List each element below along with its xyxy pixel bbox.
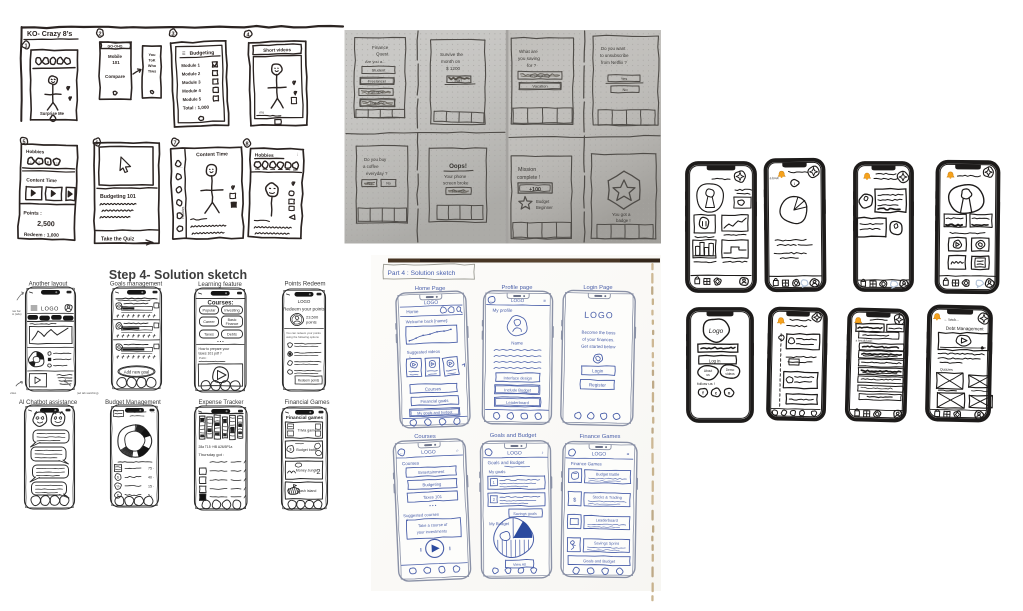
svg-text:⋮: ⋮ <box>296 152 300 156</box>
svg-text:to unsubscribe: to unsubscribe <box>600 53 629 58</box>
svg-text:Yes: Yes <box>367 182 373 186</box>
svg-text:Add new goal: Add new goal <box>124 369 149 374</box>
svg-text:⋯: ⋯ <box>151 411 155 415</box>
svg-text:LOGO: LOGO <box>507 450 522 456</box>
svg-text:←: ← <box>490 299 494 303</box>
svg-text:Module 1: Module 1 <box>181 62 200 68</box>
svg-text:7: 7 <box>173 140 176 146</box>
svg-text:• • •: • • • <box>429 503 437 508</box>
svg-text:Part-time: Part-time <box>368 91 383 95</box>
svg-text:a coffee: a coffee <box>363 164 379 169</box>
svg-text:2: 2 <box>98 31 101 37</box>
svg-text:My profile: My profile <box>492 308 512 313</box>
svg-text:Stocks & Trading: Stocks & Trading <box>592 494 622 500</box>
svg-text:Debt Management: Debt Management <box>946 326 985 332</box>
svg-text:Vacation: Vacation <box>532 84 547 89</box>
svg-text:Budget: Budget <box>536 199 550 204</box>
svg-text:GO-OHO: GO-OHO <box>108 45 123 49</box>
svg-text:Finance: Finance <box>372 45 389 50</box>
svg-text:KO- Crazy 8’s: KO- Crazy 8’s <box>27 31 72 38</box>
svg-text:Redeem points: Redeem points <box>298 379 320 383</box>
svg-text:Publi :: Publi : <box>199 356 208 360</box>
svg-text:using the following options: using the following options <box>286 335 319 339</box>
svg-text:♪: ♪ <box>541 450 543 455</box>
svg-text:Finance Games: Finance Games <box>580 434 621 440</box>
svg-text:my: my <box>259 110 264 114</box>
svg-text:month on: month on <box>441 59 461 64</box>
svg-text:LOGO: LOGO <box>584 310 614 321</box>
svg-text:Quizzes: Quizzes <box>940 368 953 372</box>
svg-text:a bout: a bout <box>770 176 779 180</box>
svg-text:Total : 1,000: Total : 1,000 <box>183 105 210 111</box>
svg-text:everyday ?: everyday ? <box>366 171 388 176</box>
svg-text:screen broke: screen broke <box>443 181 469 186</box>
svg-text:My goals: My goals <box>489 469 506 474</box>
svg-text:40 ·: 40 · <box>148 476 154 480</box>
svg-text:Mobile: Mobile <box>108 54 122 59</box>
svg-text:LOGO: LOGO <box>511 298 525 303</box>
svg-text:Goals and Budget: Goals and Budget <box>583 558 616 564</box>
svg-text:☼: ☼ <box>55 161 58 165</box>
svg-text:Finance Games: Finance Games <box>571 461 603 467</box>
svg-text:Mission: Mission <box>518 167 536 173</box>
svg-text:Full-time: Full-time <box>370 101 385 105</box>
svg-text:for ?: for ? <box>527 63 537 68</box>
svg-text:≡: ≡ <box>543 298 546 303</box>
svg-text:Compare: Compare <box>105 74 125 79</box>
svg-text:Trivia game: Trivia game <box>298 428 317 432</box>
svg-text:Module 2: Module 2 <box>182 71 201 77</box>
svg-text:Redeem your points: Redeem your points <box>283 307 326 312</box>
svg-text:Redeem : 1,000: Redeem : 1,000 <box>24 232 59 239</box>
svg-text:Step 4- Solution sketch: Step 4- Solution sketch <box>109 268 247 282</box>
svg-text:No: No <box>386 182 391 186</box>
svg-text:$: $ <box>117 476 119 480</box>
svg-text:us: us <box>706 373 710 377</box>
svg-text:Start: Start <box>454 78 461 82</box>
svg-text:Oops!: Oops! <box>449 163 467 170</box>
svg-text:2: 2 <box>316 467 320 476</box>
svg-text:Include Budget: Include Budget <box>504 387 532 392</box>
svg-text:2,500: 2,500 <box>37 221 55 228</box>
svg-text:LOGO: LOGO <box>41 307 59 313</box>
svg-text:♛: ♛ <box>46 161 49 165</box>
svg-text:15 ·: 15 · <box>148 485 154 489</box>
svg-text:1: 1 <box>24 43 27 49</box>
svg-text:‖: ‖ <box>420 547 422 553</box>
svg-text:8: 8 <box>245 141 248 147</box>
svg-text:Goals and Budget: Goals and Budget <box>490 433 537 439</box>
svg-text:Fix now: Fix now <box>452 190 465 194</box>
svg-text:(ad tab watching): (ad tab watching) <box>77 391 99 395</box>
svg-text:Module 3: Module 3 <box>182 79 201 85</box>
svg-text:View All: View All <box>513 563 526 567</box>
svg-text:%: % <box>116 485 119 489</box>
svg-text:Do you want: Do you want <box>601 46 626 51</box>
svg-text:Emergency: Emergency <box>530 73 550 78</box>
svg-text:‖: ‖ <box>449 546 451 552</box>
svg-text:complete !: complete ! <box>517 175 540 181</box>
svg-text:a breakdown:: a breakdown: <box>856 338 874 342</box>
svg-text:ToK: ToK <box>148 59 155 63</box>
svg-text:Are you a...: Are you a... <box>365 59 385 64</box>
svg-text:Debts: Debts <box>227 332 237 336</box>
svg-text:⇣: ⇣ <box>408 355 411 359</box>
svg-text:Do you buy: Do you buy <box>364 157 387 162</box>
svg-text:of your finances.: of your finances. <box>582 337 614 343</box>
svg-text:Student: Student <box>372 68 387 73</box>
svg-text:LOGO: LOGO <box>298 299 311 304</box>
svg-text:Login: Login <box>592 368 604 373</box>
svg-text:points: points <box>306 320 317 325</box>
svg-text:from Netflix ?: from Netflix ? <box>601 60 627 65</box>
svg-text:Part 4 : Solution sketch: Part 4 : Solution sketch <box>388 270 456 277</box>
svg-text:+100: +100 <box>529 187 541 193</box>
svg-text:Popular: Popular <box>202 308 216 312</box>
svg-text:i: i <box>794 182 795 186</box>
svg-text:Expense Tracker: Expense Tracker <box>198 400 243 406</box>
svg-text:Savings Sprint: Savings Sprint <box>594 540 620 545</box>
svg-text:Points Redeem: Points Redeem <box>284 282 325 288</box>
svg-text:LOGO: LOGO <box>592 451 607 457</box>
svg-text:Who: Who <box>148 64 157 68</box>
svg-text:You: You <box>149 53 157 57</box>
svg-text:Beginner: Beginner <box>536 205 553 210</box>
svg-text:Interface design: Interface design <box>504 375 533 380</box>
svg-text:Budget Battle: Budget Battle <box>596 471 619 476</box>
svg-text:Quest: Quest <box>376 52 389 57</box>
svg-text:♬: ♬ <box>38 160 41 164</box>
svg-text:You got a: You got a <box>612 212 631 217</box>
svg-text:Taxes 101: Taxes 101 <box>423 494 443 500</box>
svg-text:taxes 101 pdf ?: taxes 101 pdf ? <box>199 352 222 356</box>
svg-text:Financial games: Financial games <box>286 415 324 421</box>
svg-text:3: 3 <box>171 31 174 37</box>
svg-text:←: ← <box>400 451 404 455</box>
svg-text:Yes: Yes <box>621 76 628 81</box>
svg-text:Content Time: Content Time <box>26 177 57 184</box>
svg-text:Cash Island: Cash Island <box>297 489 316 493</box>
svg-text:Log in: Log in <box>709 359 721 364</box>
svg-text:$: $ <box>573 498 576 504</box>
svg-text:• • •: • • • <box>217 339 224 344</box>
svg-text:LOGO: LOGO <box>421 449 436 456</box>
svg-text:Name: Name <box>511 340 523 345</box>
svg-text:videos: videos <box>725 372 735 376</box>
svg-text:Learning feature: Learning feature <box>198 282 242 288</box>
svg-text:Financial Games: Financial Games <box>284 400 329 406</box>
svg-text:Courses: Courses <box>414 434 436 440</box>
svg-text:Home: Home <box>406 309 419 314</box>
svg-text:Hobbies: Hobbies <box>26 149 45 154</box>
svg-text:Career: Career <box>203 320 215 324</box>
svg-text:Savings goals: Savings goals <box>513 512 537 516</box>
svg-text:Take the Quiz: Take the Quiz <box>101 237 135 243</box>
svg-text:How to prepare your: How to prepare your <box>199 347 231 351</box>
svg-text:101: 101 <box>112 60 120 65</box>
svg-text:Thursday got :: Thursday got : <box>199 452 225 457</box>
svg-text:Leaderboard: Leaderboard <box>596 517 618 522</box>
svg-text:Module 4: Module 4 <box>182 88 201 94</box>
svg-text:Content Time: Content Time <box>196 151 228 158</box>
svg-text:Budgeting: Budgeting <box>422 482 442 488</box>
svg-text:Courses: Courses <box>425 386 442 392</box>
svg-text:o: o <box>728 391 731 396</box>
svg-text:Courses: Courses <box>402 460 420 466</box>
svg-text:Budget battle: Budget battle <box>296 448 317 452</box>
svg-text:Your phone: Your phone <box>444 174 467 179</box>
svg-text:hobbies: hobbies <box>181 206 185 218</box>
svg-text:Logo: Logo <box>709 328 724 335</box>
svg-text:to (tabs): to (tabs) <box>12 312 22 316</box>
svg-text:Finance: Finance <box>226 322 239 326</box>
svg-text:Money Jungle: Money Jungle <box>296 468 318 472</box>
svg-text:$: $ <box>290 448 292 452</box>
svg-text:28a T15 ·HB A26/5P1a: 28a T15 ·HB A26/5P1a <box>199 445 233 449</box>
svg-text:≡: ≡ <box>627 451 630 456</box>
svg-text:Short videos: Short videos <box>263 47 291 53</box>
svg-text:Profile page: Profile page <box>502 285 533 291</box>
svg-text:Taxes: Taxes <box>204 332 214 336</box>
svg-text:follow us !: follow us ! <box>697 381 715 386</box>
svg-text:Goals and Budget: Goals and Budget <box>488 460 526 465</box>
svg-text:Tiws: Tiws <box>148 70 156 74</box>
svg-text:Get started below: Get started below <box>581 344 616 350</box>
svg-text:Survive the: Survive the <box>440 52 463 57</box>
svg-text:you saving: you saving <box>518 56 540 61</box>
svg-text:$ 1200: $ 1200 <box>446 66 460 71</box>
svg-text:badge !: badge ! <box>616 218 631 223</box>
svg-text:Investing: Investing <box>224 308 239 312</box>
svg-text:☰: ☰ <box>182 50 186 55</box>
svg-text:Financial goals: Financial goals <box>420 398 448 404</box>
svg-text:video: video <box>10 391 17 395</box>
svg-text:Module 5: Module 5 <box>182 96 201 102</box>
svg-text:What are: What are <box>519 49 538 54</box>
svg-text:No: No <box>622 87 628 92</box>
svg-text:Budgeting 101: Budgeting 101 <box>100 194 136 200</box>
svg-text:← back...: ← back... <box>944 318 959 322</box>
svg-text:Become the boss: Become the boss <box>582 330 617 336</box>
svg-text:75 ·: 75 · <box>148 467 154 471</box>
svg-text:Leaderboard: Leaderboard <box>506 400 529 405</box>
svg-text:Points :: Points : <box>23 210 42 216</box>
svg-text:Register: Register <box>589 382 607 387</box>
svg-text:Freelancer: Freelancer <box>368 80 387 84</box>
